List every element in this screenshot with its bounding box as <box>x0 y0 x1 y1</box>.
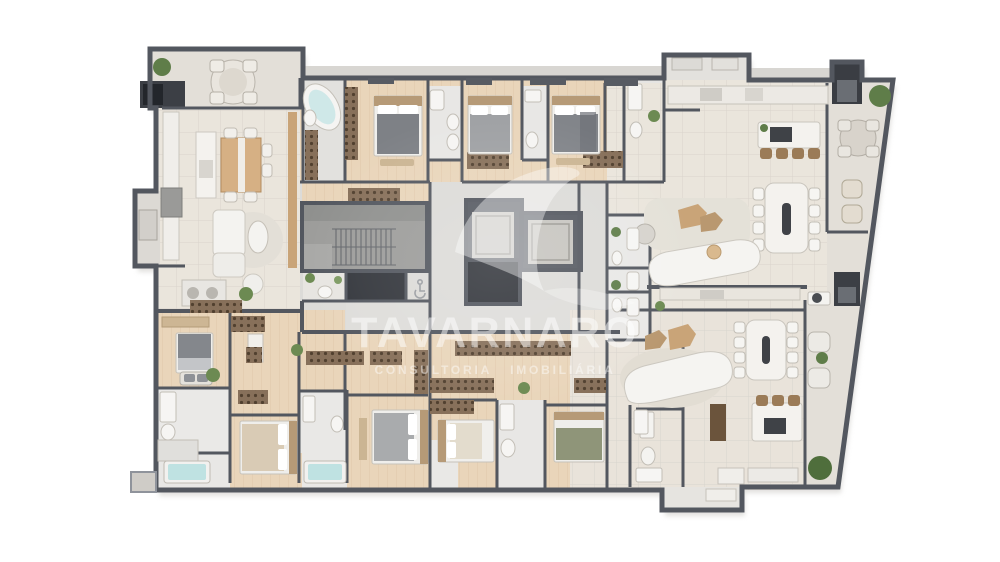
svg-text:CONSULTORIA IMOBILIÁRIA: CONSULTORIA IMOBILIÁRIA <box>374 362 615 377</box>
svg-text:TAVARNARO: TAVARNARO <box>351 309 639 357</box>
